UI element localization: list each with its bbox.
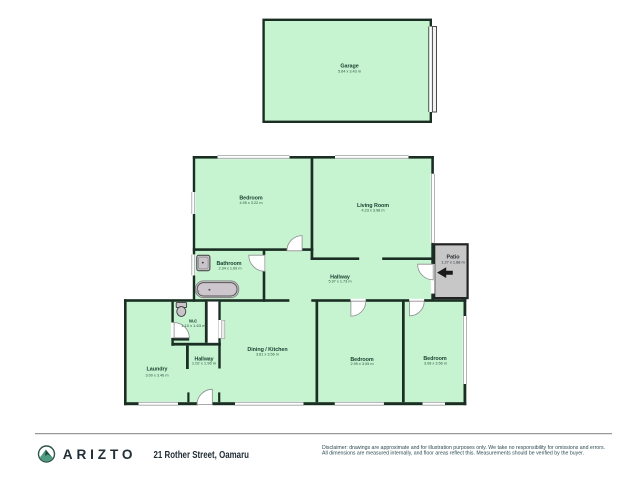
- svg-text:3.00 x 3.46 m: 3.00 x 3.46 m: [145, 374, 168, 378]
- svg-text:3.08 x 3.56 m: 3.08 x 3.56 m: [424, 361, 447, 365]
- svg-text:1.10 x 1.63 m: 1.10 x 1.63 m: [181, 323, 206, 328]
- svg-text:2.34 x 1.69 m: 2.34 x 1.69 m: [218, 267, 241, 271]
- svg-text:3.81 x 3.56 m: 3.81 x 3.56 m: [256, 353, 279, 357]
- svg-text:1.02 x 1.96 m: 1.02 x 1.96 m: [192, 360, 217, 365]
- svg-text:2.99 x 3.05 m: 2.99 x 3.05 m: [350, 362, 373, 366]
- svg-text:1.27 x 1.88 m: 1.27 x 1.88 m: [441, 259, 465, 264]
- svg-text:All dimensions are measured in: All dimensions are measured internally, …: [322, 450, 584, 456]
- svg-text:4.95 x 3.22 m: 4.95 x 3.22 m: [239, 201, 262, 205]
- svg-text:ARIZTO: ARIZTO: [63, 447, 137, 463]
- svg-text:Laundry: Laundry: [147, 367, 168, 373]
- svg-text:5.97 x 1.73 m: 5.97 x 1.73 m: [328, 279, 351, 283]
- svg-text:4.23 x 3.98 m: 4.23 x 3.98 m: [361, 209, 384, 213]
- svg-text:5.64 x 3.43 m: 5.64 x 3.43 m: [338, 70, 361, 74]
- svg-text:21 Rother Street, Oamaru: 21 Rother Street, Oamaru: [154, 449, 250, 461]
